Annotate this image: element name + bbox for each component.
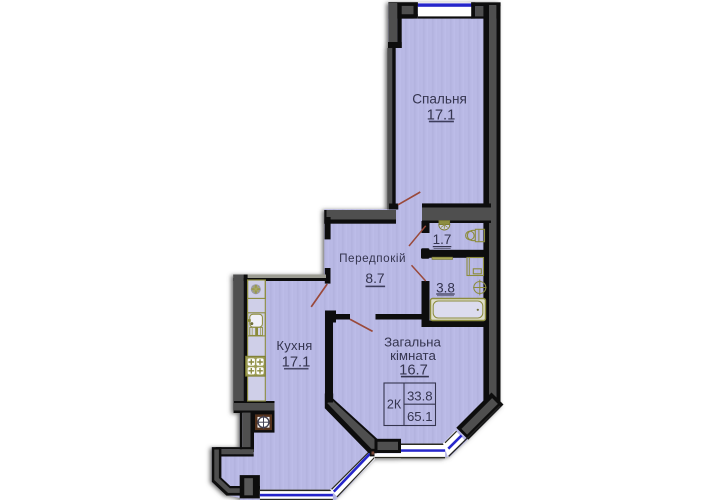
svg-text:Передпокій: Передпокій xyxy=(339,252,406,265)
svg-text:1.7: 1.7 xyxy=(433,232,452,247)
svg-text:Кухня: Кухня xyxy=(276,338,312,353)
svg-text:3.8: 3.8 xyxy=(436,280,455,295)
svg-text:33.8: 33.8 xyxy=(407,388,433,403)
svg-text:65.1: 65.1 xyxy=(407,409,433,424)
svg-text:Спальня: Спальня xyxy=(412,91,467,106)
svg-text:кімната: кімната xyxy=(390,348,436,363)
svg-text:2К: 2К xyxy=(387,398,402,412)
svg-text:8.7: 8.7 xyxy=(365,271,384,286)
